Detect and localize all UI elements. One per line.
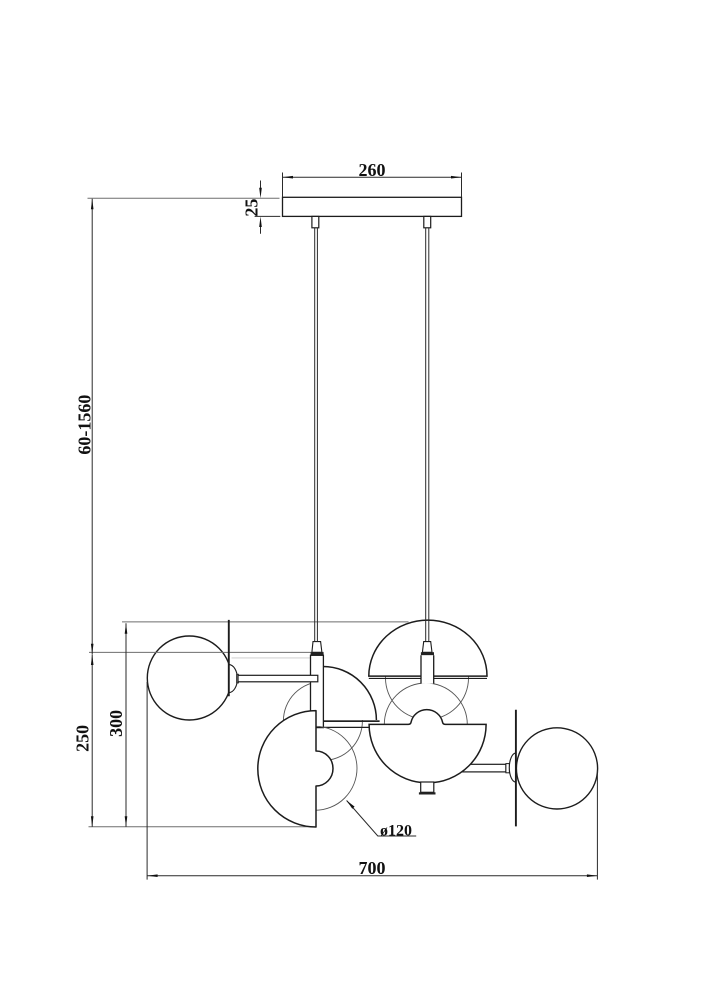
svg-text:300: 300 xyxy=(106,710,126,737)
svg-text:ø120: ø120 xyxy=(380,823,412,840)
svg-text:60-1560: 60-1560 xyxy=(75,395,95,455)
svg-text:700: 700 xyxy=(359,858,386,878)
svg-text:25: 25 xyxy=(241,199,261,217)
svg-text:260: 260 xyxy=(359,160,386,180)
svg-text:250: 250 xyxy=(73,725,93,752)
